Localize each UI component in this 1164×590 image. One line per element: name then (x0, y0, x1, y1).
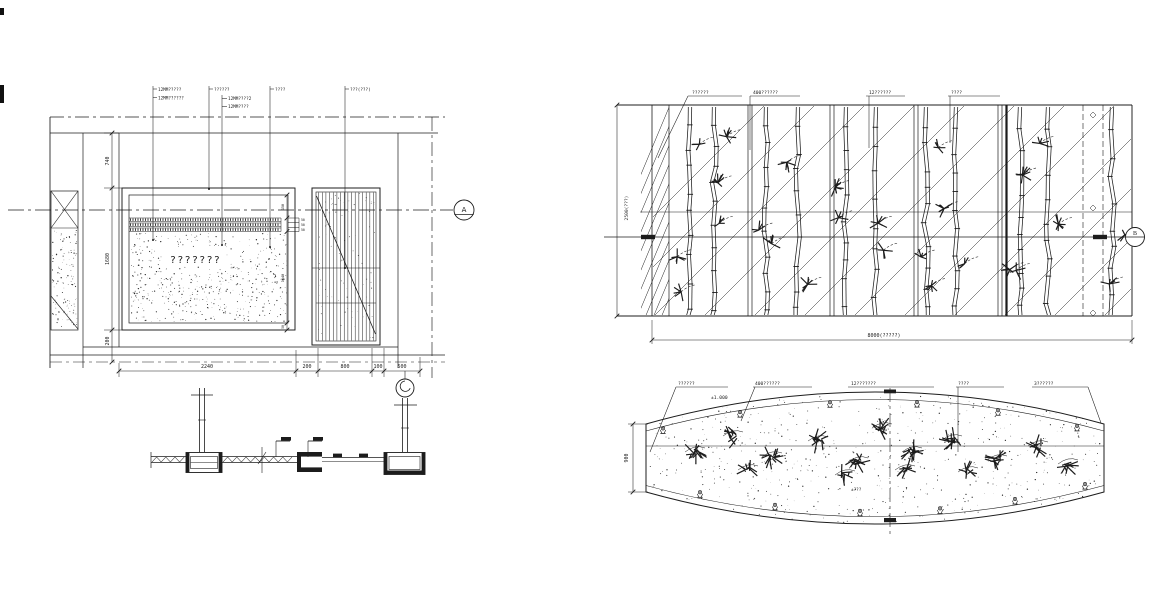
wall-elevation-view: 12MM????? 12MM?????? ?????? 12MM????2 12… (8, 86, 474, 378)
leader-label-l2b: 12MM???? (228, 104, 249, 110)
leader-label-r1: ?????? (692, 90, 709, 96)
leader-label-l2: ?????? (214, 87, 230, 93)
planter-outline (646, 388, 1104, 538)
dim-width-2240: 2240 (201, 364, 213, 370)
leader-label-l4: ???(???) (350, 87, 371, 93)
center-note: ±??? (851, 487, 862, 493)
dimension-lines-plan (628, 422, 648, 495)
leader-label-p1: ?????? (678, 381, 695, 387)
section-marker-b-label: B (1133, 231, 1137, 237)
planter-stipple (650, 396, 1101, 525)
dim-height-200: 200 (105, 336, 111, 345)
planter-plan-view: ?????? ±1.000 400?????? 12??????? ???? 3… (624, 381, 1104, 538)
leader-lines (152, 86, 349, 269)
wall-structure (8, 117, 453, 378)
dim-right-50d: 50 (281, 325, 285, 329)
dim-screen-width: 8000(?????) (867, 333, 900, 339)
dimension-lines (104, 131, 422, 377)
dim-width-500: 500 (397, 364, 406, 370)
bamboo-pattern (668, 107, 1138, 315)
glass-diagonal-hatch (540, 102, 1164, 330)
screen-artifacts (0, 8, 4, 103)
cad-sheet: 12MM????? 12MM?????? ?????? 12MM????2 12… (0, 0, 1164, 590)
bamboo-screen-elevation: ?????? 400?????? 12?????? ???? 2500(???)… (540, 90, 1164, 344)
leader-label-p2: 400?????? (755, 381, 780, 387)
dim-width-800: 800 (340, 364, 349, 370)
section-marker-a-label: A (462, 206, 467, 214)
leader-label-p3: 12??????? (851, 381, 876, 387)
dim-height-1680: 1680 (105, 253, 111, 265)
bamboo-screen-structure (604, 105, 1145, 316)
leader-label-l1b: 12MM?????? (158, 96, 184, 102)
dim-width-200: 200 (302, 364, 311, 370)
level-note: ±1.000 (711, 395, 728, 401)
dim-height-740: 740 (105, 156, 111, 165)
dim-right-50a: 50 (301, 218, 305, 222)
dim-right-50c: 50 (301, 228, 305, 232)
leader-label-l1a: 12MM????? (158, 87, 182, 93)
leader-label-r3: 12?????? (869, 90, 891, 96)
planter-bamboo-leaves (685, 418, 1079, 486)
dim-screen-height: 2500(???) (624, 196, 630, 221)
leader-label-l2a: 12MM????2 (228, 96, 252, 102)
leader-label-r4: ???? (951, 90, 962, 96)
dim-width-100: 100 (373, 364, 382, 370)
planter-anchor-symbols (660, 400, 1088, 516)
panel-caption: ??????? (170, 255, 221, 266)
dim-right-50b: 50 (301, 223, 305, 227)
cad-viewport: 12MM????? 12MM?????? ?????? 12MM????2 12… (0, 0, 1164, 590)
leader-label-l3: ???? (275, 87, 286, 93)
dim-right-150: 150 (281, 204, 285, 210)
panel-stipple-texture (131, 233, 288, 322)
leader-label-p5: 3?????? (1034, 381, 1054, 387)
dim-right-1540: 1540 (281, 274, 285, 282)
slat-screen-texture (318, 193, 375, 339)
plan-section-detail (151, 371, 425, 475)
dim-planter-height: 900 (624, 453, 630, 462)
leader-label-r2: 400?????? (753, 90, 778, 96)
leader-label-p4: ???? (958, 381, 969, 387)
slat-screen-battens (319, 193, 374, 341)
